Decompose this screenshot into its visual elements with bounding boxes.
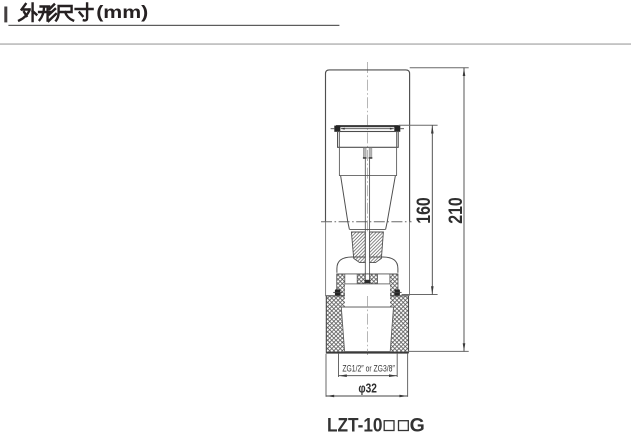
svg-text:LZT-10: LZT-10: [327, 414, 383, 436]
svg-text:ZG1/2″ or ZG3/8″: ZG1/2″ or ZG3/8″: [342, 363, 395, 373]
svg-text:φ32: φ32: [358, 381, 377, 396]
svg-text:210: 210: [446, 197, 467, 224]
svg-text:(mm): (mm): [96, 2, 148, 22]
svg-text:G: G: [410, 414, 425, 436]
svg-text:160: 160: [414, 197, 435, 224]
